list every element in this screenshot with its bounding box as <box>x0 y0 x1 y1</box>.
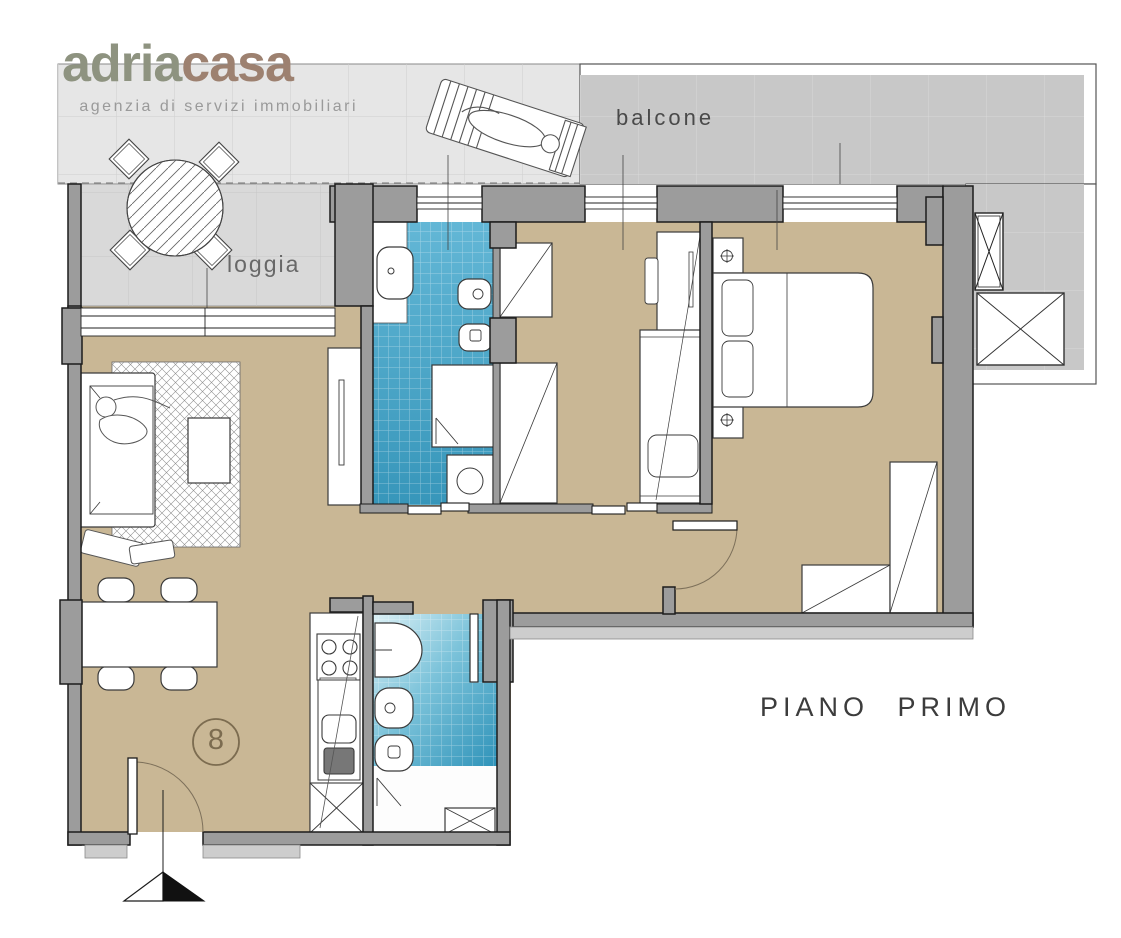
bidet <box>375 688 413 728</box>
tv-cabinet <box>328 348 365 505</box>
sliding-glass-door <box>81 308 335 336</box>
dining-table <box>80 602 217 667</box>
toilet <box>459 324 492 351</box>
unit-number-label: 8 <box>194 724 238 757</box>
floor-plan-page: adriacasa agenzia di servizi immobiliari… <box>0 0 1121 938</box>
floor-plan-drawing <box>0 0 1121 938</box>
double-bed <box>713 273 873 407</box>
kitchen <box>310 613 363 833</box>
shaft-narrow <box>975 213 1003 290</box>
dining-chair <box>98 578 134 602</box>
wardrobe <box>500 243 552 317</box>
logo-part-casa: casa <box>181 35 293 93</box>
kitchen-base-unit <box>310 783 363 833</box>
bathroom-1 <box>373 222 494 505</box>
window <box>585 197 657 209</box>
single-bed <box>640 330 707 503</box>
shaft-large <box>977 293 1064 365</box>
window <box>417 197 482 209</box>
pillow <box>648 435 698 477</box>
dining-chair <box>161 578 197 602</box>
kitchen-sink <box>318 680 360 780</box>
pillow <box>722 341 753 397</box>
shower-tray <box>445 808 495 834</box>
dining-chair <box>98 666 134 690</box>
desk-chair <box>645 258 658 304</box>
logo-part-adria: adria <box>62 35 181 93</box>
sofa <box>78 373 155 527</box>
toilet <box>375 735 413 771</box>
agency-tagline: agenzia di servizi immobiliari <box>64 98 358 116</box>
bidet <box>458 279 491 309</box>
balcony-label: balcone <box>616 105 714 131</box>
nightstand <box>713 238 743 273</box>
bathroom2-door <box>470 614 478 682</box>
washing-machine <box>447 455 493 505</box>
wardrobe <box>500 363 557 503</box>
coffee-table <box>188 418 230 483</box>
shower <box>432 365 494 447</box>
loggia-label: loggia <box>227 251 300 278</box>
dining-chair <box>161 666 197 690</box>
floor-title-label: PIANO PRIMO <box>760 692 1011 723</box>
window <box>783 197 897 209</box>
pillow <box>722 280 753 336</box>
sink <box>377 247 413 299</box>
agency-logo: adriacasa <box>62 38 293 90</box>
